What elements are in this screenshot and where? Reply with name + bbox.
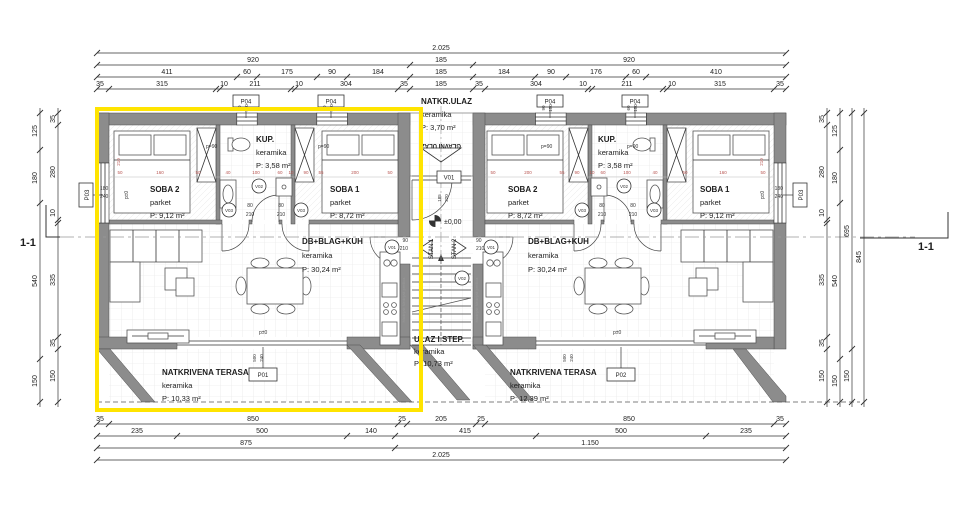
red-dim: 10 — [589, 170, 595, 175]
dim: 875 — [240, 440, 252, 447]
room-floor: keramika — [421, 110, 452, 119]
dim: 845 — [856, 251, 863, 263]
tag-label: P01 — [258, 373, 269, 379]
dim: 10 — [668, 81, 676, 88]
wall — [646, 113, 786, 125]
dim: 500 — [615, 428, 627, 435]
dim: 850 — [247, 416, 259, 423]
unit2-label: STAN 2 — [452, 238, 458, 259]
dim: 185 — [435, 81, 447, 88]
dim: 35 — [475, 81, 483, 88]
door-dim: 90 — [476, 238, 482, 244]
dim: 25 — [398, 416, 406, 423]
dim: 150 — [32, 375, 39, 387]
parapet-label: p=90 — [318, 144, 329, 150]
tag-label: V01 — [388, 245, 397, 250]
room-area: P: 3,58 m² — [598, 161, 633, 170]
dim: 35 — [819, 339, 826, 347]
wall — [566, 113, 626, 125]
tag-label: V03 — [578, 208, 587, 213]
dim: 304 — [340, 81, 352, 88]
red-dim: 50 — [195, 170, 201, 175]
dim: 695 — [844, 225, 851, 237]
dim: 140 — [365, 428, 377, 435]
window-dim: 180 — [100, 186, 109, 192]
room-floor: keramika — [528, 251, 559, 260]
room-floor: parket — [700, 198, 722, 207]
wall — [257, 113, 317, 125]
dim: 35 — [50, 115, 57, 123]
door-dim: 210 — [629, 212, 638, 218]
red-dim: 100 — [623, 170, 631, 175]
red-dim: 55 — [318, 170, 324, 175]
wall — [473, 113, 485, 237]
wall — [663, 125, 667, 224]
dim: 235 — [740, 428, 752, 435]
dim: 35 — [776, 416, 784, 423]
terrace-sliding-door-right — [536, 341, 706, 345]
section-bracket-right — [860, 212, 948, 238]
level-label: ±0,00 — [444, 219, 462, 226]
terrace-sliding-door-left — [177, 341, 347, 345]
door-dim: 210 — [598, 212, 607, 218]
tag-label: V02 — [458, 276, 467, 281]
bottom-dimensions: 35 850 25 205 25 850 35 235 500 140 415 … — [94, 416, 789, 463]
dim: 125 — [832, 125, 839, 137]
door-dim: 500 — [252, 354, 257, 362]
door-dim: 240 — [259, 354, 264, 362]
red-dim: 40 — [225, 170, 231, 175]
floor-zero-label: p±0 — [760, 191, 766, 200]
dim: 211 — [621, 81, 632, 88]
room-area: P: 8,72 m² — [508, 211, 543, 220]
dim: 175 — [281, 69, 293, 76]
red-dim: 90 — [574, 170, 580, 175]
dim: 235 — [131, 428, 143, 435]
door-dim: 210 — [277, 212, 286, 218]
tag-label: V03 — [225, 208, 234, 213]
tag-label: V03 — [297, 208, 306, 213]
dim: 185 — [435, 69, 447, 76]
dim: 10 — [220, 81, 228, 88]
room-area: P: 30,24 m² — [528, 265, 567, 274]
room-floor: keramika — [162, 381, 193, 390]
dim: 176 — [590, 69, 602, 76]
dim: 410 — [710, 69, 722, 76]
dim: 184 — [372, 69, 384, 76]
dim: 1.150 — [581, 440, 599, 447]
door-dim: 80 — [247, 203, 253, 209]
window-dim: 150 — [633, 104, 638, 112]
dim: 150 — [819, 370, 826, 382]
room-area: P: 10,33 m² — [162, 394, 201, 403]
red-dim: 60 — [277, 170, 283, 175]
red-dim: 50 — [682, 170, 688, 175]
section-label-left: 1-1 — [20, 237, 36, 249]
red-dim: 200 — [351, 170, 359, 175]
door-dim: 90 — [402, 238, 408, 244]
dim: 920 — [623, 57, 635, 64]
red-dim: 50 — [490, 170, 496, 175]
room-floor: parket — [508, 198, 530, 207]
top-dimensions: 2.025 920 185 920 411 60 175 90 184 185 … — [94, 45, 789, 92]
kitchen-counter — [380, 252, 400, 345]
wall — [485, 220, 574, 224]
dim: 205 — [435, 416, 447, 423]
tv-console — [127, 330, 189, 343]
floor-plan-sheet: 1-1 1-1 2.025 920 185 920 411 60 175 90 … — [0, 0, 960, 509]
window-dim: 60 — [626, 105, 631, 111]
dim: 850 — [623, 416, 635, 423]
red-dim: 50 — [117, 170, 123, 175]
door-dim: 80 — [630, 203, 636, 209]
room-area: P: 12,39 m² — [510, 394, 549, 403]
door-dim: 240 — [569, 354, 574, 362]
red-dim: 50 — [387, 170, 393, 175]
dim: 280 — [819, 166, 826, 178]
tag-label: V02 — [255, 184, 264, 189]
wall — [309, 220, 398, 224]
parapet-label: p=90 — [627, 144, 638, 150]
dim: 335 — [819, 274, 826, 286]
dim: 35 — [96, 416, 104, 423]
tag-label: V01 — [487, 245, 496, 250]
dim: 35 — [50, 339, 57, 347]
red-dim: 40 — [652, 170, 658, 175]
dim: 315 — [156, 81, 168, 88]
dim: 315 — [714, 81, 726, 88]
room-area: P: 8,72 m² — [330, 211, 365, 220]
dim: 184 — [498, 69, 510, 76]
dim: 150 — [832, 375, 839, 387]
wall — [249, 220, 252, 224]
window-top-right-90 — [536, 113, 567, 125]
parapet-label: p=90 — [541, 144, 552, 150]
dim: 415 — [459, 428, 471, 435]
dim: 10 — [295, 81, 303, 88]
dim: 280 — [50, 166, 57, 178]
red-dim: 210 — [116, 158, 121, 166]
door-dim: 220 — [444, 194, 449, 202]
floor-zero-label: p±0 — [613, 330, 622, 336]
room-name: NATKRIVENA TERASA — [162, 368, 249, 377]
wall — [661, 220, 774, 224]
door-dim: 80 — [278, 203, 284, 209]
dim: 35 — [96, 81, 104, 88]
window-dim: 150 — [548, 104, 553, 112]
room-name: SOBA 2 — [508, 185, 538, 194]
kitchen-appliance-label: hladnjak štednjak perilica — [401, 277, 406, 322]
dim: 10 — [50, 209, 57, 217]
tag-label: P03 — [85, 189, 91, 200]
dim: 2.025 — [432, 452, 450, 459]
dim: 335 — [50, 274, 57, 286]
room-name: DB+BLAG+KUH — [302, 237, 363, 246]
entry-arrow-label: GLAVNI ULAZ — [421, 142, 461, 148]
wall — [631, 220, 634, 224]
room-area: P: 9,12 m² — [700, 211, 735, 220]
dim: 35 — [819, 115, 826, 123]
window-top-right-60 — [626, 113, 646, 125]
dim: 180 — [832, 172, 839, 184]
dim: 60 — [632, 69, 640, 76]
room-area: P: 3,70 m² — [421, 123, 456, 132]
dim: 25 — [477, 416, 485, 423]
room-name: SOBA 1 — [700, 185, 730, 194]
tag-label: P02 — [616, 373, 627, 379]
dim: 35 — [776, 81, 784, 88]
room-name: SOBA 2 — [150, 185, 180, 194]
window-dim: 90 — [541, 105, 546, 111]
red-dim: 100 — [252, 170, 260, 175]
dim: 500 — [256, 428, 268, 435]
room-floor: keramika — [598, 148, 629, 157]
parapet-label: p=90 — [206, 144, 217, 150]
red-dim: 55 — [559, 170, 565, 175]
room-floor: keramika — [256, 148, 287, 157]
dim: 150 — [844, 370, 851, 382]
wall — [774, 113, 786, 163]
window-dim: 240 — [775, 194, 784, 200]
dim: 90 — [328, 69, 336, 76]
room-name: KUP. — [598, 135, 616, 144]
door-dim: 185 — [437, 194, 442, 202]
room-floor: keramika — [302, 251, 333, 260]
room-floor: keramika — [414, 347, 445, 356]
door-dim: 210 — [400, 246, 409, 252]
room-name: KUP. — [256, 135, 274, 144]
toilet-icon — [232, 138, 250, 151]
dim: 540 — [32, 275, 39, 287]
kitchen-appliance-label: hladnjak štednjak perilica — [474, 277, 479, 322]
wall — [398, 113, 410, 237]
room-area: P: 3,58 m² — [256, 161, 291, 170]
left-dimensions: 35 280 10 335 35 150 125 180 540 150 — [32, 108, 61, 407]
dim: 211 — [249, 81, 260, 88]
red-dim: 10 — [288, 170, 294, 175]
dim: 90 — [547, 69, 555, 76]
dim: 304 — [530, 81, 542, 88]
window-dim: 240 — [100, 194, 109, 200]
wall — [774, 223, 786, 349]
tv-console — [694, 330, 756, 343]
tag-label: P03 — [799, 189, 805, 200]
dim: 2.025 — [432, 45, 450, 52]
tag-label: V03 — [650, 208, 659, 213]
dim: 411 — [161, 69, 172, 76]
dim: 180 — [32, 172, 39, 184]
kitchen-counter — [483, 252, 503, 345]
room-area: P: 30,24 m² — [302, 265, 341, 274]
door-dim: 210 — [246, 212, 255, 218]
red-dim: 160 — [156, 170, 164, 175]
room-floor: parket — [330, 198, 352, 207]
red-dim: 200 — [524, 170, 532, 175]
right-dimensions: 35 280 10 335 35 150 125 180 540 150 695… — [819, 108, 867, 407]
door-dim: 80 — [599, 203, 605, 209]
red-dim: 210 — [759, 158, 764, 166]
room-floor: parket — [150, 198, 172, 207]
window-side-right — [774, 163, 786, 223]
red-dim: 90 — [303, 170, 309, 175]
dim: 920 — [247, 57, 259, 64]
wall — [109, 220, 222, 224]
red-dim: 60 — [600, 170, 606, 175]
door-dim: 210 — [476, 246, 485, 252]
dim: 540 — [832, 275, 839, 287]
window-top-left-90 — [317, 113, 348, 125]
room-area: P: 9,12 m² — [150, 211, 185, 220]
dim: 35 — [400, 81, 408, 88]
dim: 125 — [32, 125, 39, 137]
tag-label: V01 — [444, 176, 455, 182]
room-floor: keramika — [510, 381, 541, 390]
door-dim: 500 — [562, 354, 567, 362]
window-top-left-60 — [237, 113, 257, 125]
floor-zero-label: p±0 — [124, 191, 130, 200]
wall — [97, 113, 237, 125]
red-dim: 50 — [760, 170, 766, 175]
dim: 10 — [579, 81, 587, 88]
room-name: DB+BLAG+KUH — [528, 237, 589, 246]
floor-plan-drawing: 1-1 1-1 2.025 920 185 920 411 60 175 90 … — [0, 0, 960, 509]
section-label-right: 1-1 — [918, 241, 934, 253]
window-dim: 180 — [775, 186, 784, 192]
dim: 60 — [243, 69, 251, 76]
floor-zero-label: p±0 — [259, 330, 268, 336]
dim: 185 — [435, 57, 447, 64]
wall — [279, 220, 282, 224]
room-name: NATKR.ULAZ — [421, 97, 472, 106]
dim: 10 — [819, 209, 826, 217]
red-dim: 160 — [719, 170, 727, 175]
room-name: SOBA 1 — [330, 185, 360, 194]
room-name: NATKRIVENA TERASA — [510, 368, 597, 377]
tag-label: V02 — [620, 184, 629, 189]
dim: 150 — [50, 370, 57, 382]
wall — [601, 220, 604, 224]
wall — [216, 125, 220, 224]
